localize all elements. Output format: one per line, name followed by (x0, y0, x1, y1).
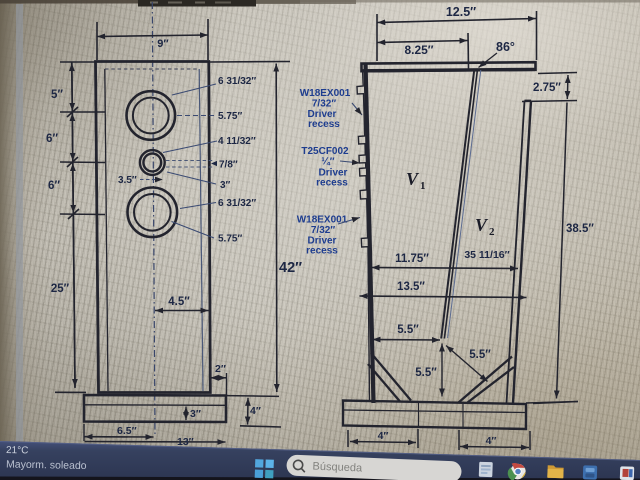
svg-text:38.5″: 38.5″ (566, 223, 594, 235)
svg-text:4″: 4″ (250, 405, 261, 417)
svg-text:6″: 6″ (48, 180, 60, 192)
svg-text:3″: 3″ (190, 408, 201, 420)
svg-text:2.75″: 2.75″ (533, 82, 561, 94)
svg-text:V: V (406, 169, 420, 189)
svg-text:6 31/32″: 6 31/32″ (218, 76, 256, 87)
svg-text:5.5″: 5.5″ (415, 367, 437, 379)
svg-text:recess: recess (308, 119, 340, 130)
svg-text:42″: 42″ (279, 260, 302, 276)
svg-text:7/8″: 7/8″ (219, 160, 238, 171)
svg-text:3″: 3″ (220, 180, 231, 191)
svg-text:25″: 25″ (51, 283, 70, 295)
svg-text:Mayorm. soleado: Mayorm. soleado (6, 459, 87, 473)
svg-text:2″: 2″ (215, 363, 226, 375)
svg-text:35 11/16″: 35 11/16″ (464, 249, 509, 261)
svg-text:6.5″: 6.5″ (117, 425, 137, 437)
svg-text:4.5″: 4.5″ (168, 296, 190, 308)
svg-text:V: V (475, 215, 489, 235)
svg-text:5.5″: 5.5″ (397, 324, 419, 336)
svg-text:5″: 5″ (51, 89, 63, 101)
svg-text:7/32″: 7/32″ (311, 225, 335, 236)
svg-text:11.75″: 11.75″ (395, 253, 429, 265)
svg-text:6″: 6″ (46, 133, 58, 145)
svg-text:W18EX001: W18EX001 (300, 88, 351, 99)
svg-text:5.75″: 5.75″ (218, 234, 242, 245)
svg-text:Búsqueda: Búsqueda (312, 461, 363, 475)
svg-text:3.5″: 3.5″ (118, 175, 137, 186)
svg-text:recess: recess (306, 246, 338, 257)
svg-text:13″: 13″ (177, 436, 194, 448)
svg-text:¼″: ¼″ (321, 157, 334, 168)
svg-text:1: 1 (420, 180, 426, 192)
svg-text:4″: 4″ (486, 435, 497, 447)
svg-text:8.25″: 8.25″ (404, 43, 433, 57)
svg-text:13.5″: 13.5″ (397, 281, 425, 293)
svg-text:12.5″: 12.5″ (446, 5, 476, 19)
svg-text:5.75″: 5.75″ (218, 111, 242, 122)
svg-text:6 31/32″: 6 31/32″ (218, 198, 256, 209)
svg-text:4″: 4″ (378, 430, 389, 442)
svg-text:4 11/32″: 4 11/32″ (218, 136, 256, 147)
svg-text:recess: recess (316, 178, 348, 189)
svg-text:T25CF002: T25CF002 (301, 146, 349, 157)
svg-text:5.5″: 5.5″ (469, 349, 491, 361)
svg-text:21°C: 21°C (6, 445, 29, 456)
svg-text:86°: 86° (496, 40, 515, 54)
svg-text:7/32″: 7/32″ (312, 99, 336, 110)
svg-text:2: 2 (489, 226, 495, 238)
svg-text:9″: 9″ (157, 38, 169, 50)
